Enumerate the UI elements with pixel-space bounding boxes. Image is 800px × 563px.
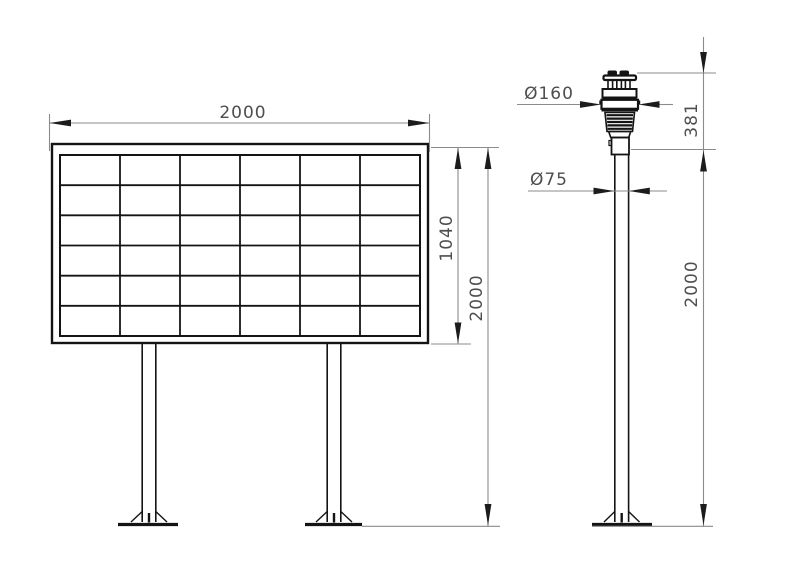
sensor-diameter-dim: Ø160 [524,84,574,104]
pole-base-plate [592,512,652,525]
arrow-right [580,101,601,108]
arrow-up [455,148,462,169]
sensor-post [617,80,622,89]
arrow-down [700,504,707,526]
board-dimensions: 2000 1040 2000 [50,103,501,526]
board-total-height-dim: 2000 [467,274,487,321]
mounting-pole [615,155,629,523]
sensor-post [608,80,613,89]
pole-diameter-dim: Ø75 [530,170,568,190]
arrow-up [700,151,707,172]
arrow-up [485,148,492,169]
sensor-body-mid [602,100,639,109]
arrow-left [639,101,660,108]
sensor-height-dim: 381 [682,102,702,137]
technical-drawing: 2000 1040 2000 [0,0,800,563]
panel-grid-lines [60,155,420,336]
sensor-neck [612,138,630,155]
arrow-right [408,120,430,127]
drawing-canvas: 2000 1040 2000 [0,0,800,563]
arrow-down [455,323,462,344]
arrow-down [485,504,492,526]
sensor-post [625,80,630,89]
arrow-left [50,120,72,127]
panel-height-dim: 1040 [437,214,457,261]
board-width-dim: 2000 [219,103,266,123]
pole-view [592,71,652,525]
sensor-body-upper [603,89,637,98]
board-legs [142,343,341,522]
board-view [52,144,428,525]
arrow-down [700,52,707,73]
pole-height-dim: 2000 [682,260,702,307]
arrow-left [629,188,650,195]
arrow-right [594,188,615,195]
weather-sensor [599,71,640,155]
board-base-plates [118,512,362,525]
